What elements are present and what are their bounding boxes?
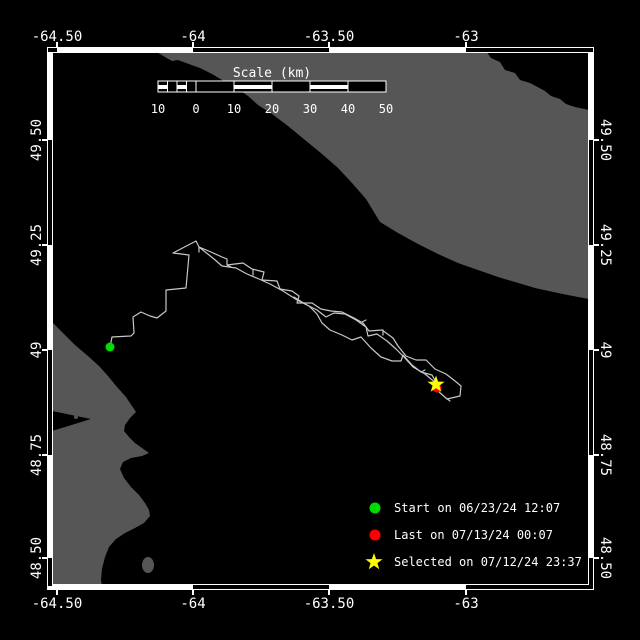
lat-label-right: 48.75 — [597, 434, 613, 476]
lat-label-left: 49.25 — [29, 224, 45, 266]
lon-label-bottom: -63 — [453, 596, 478, 612]
lon-label-bottom: -64.50 — [32, 596, 83, 612]
map-canvas: -64.50 -64 -63.50 -63 -64.50 -64 -63.50 … — [0, 0, 640, 640]
legend-last-label: Last on 07/13/24 00:07 — [394, 528, 553, 542]
scale-bar-label: 50 — [379, 102, 393, 116]
legend: Start on 06/23/24 12:07 Last on 07/13/24… — [365, 501, 581, 569]
lat-label-right: 48.50 — [597, 537, 613, 579]
lon-label-top: -63.50 — [304, 29, 355, 45]
lat-label-left: 49.50 — [29, 119, 45, 161]
lat-label-left: 48.50 — [29, 537, 45, 579]
scale-bar-label: 20 — [265, 102, 279, 116]
lon-label-bottom: -64 — [180, 596, 205, 612]
coastal-islet — [74, 415, 78, 419]
scale-bar-label: 30 — [303, 102, 317, 116]
small-island — [142, 557, 154, 573]
legend-last-icon — [370, 530, 381, 541]
scale-bar-label: 0 — [192, 102, 199, 116]
drifter-track-map: -64.50 -64 -63.50 -63 -64.50 -64 -63.50 … — [0, 0, 640, 640]
lat-label-right: 49 — [597, 342, 613, 359]
start-position-marker — [106, 343, 115, 352]
scale-bar-label: 40 — [341, 102, 355, 116]
legend-selected-label: Selected on 07/12/24 23:37 — [394, 555, 582, 569]
scale-bar-label: 10 — [227, 102, 241, 116]
lat-label-right: 49.25 — [597, 224, 613, 266]
scale-bar-label: 10 — [151, 102, 165, 116]
scale-bar-title: Scale (km) — [233, 66, 311, 81]
lon-label-bottom: -63.50 — [304, 596, 355, 612]
lon-label-top: -64.50 — [32, 29, 83, 45]
lon-label-top: -64 — [180, 29, 205, 45]
lat-label-left: 48.75 — [29, 434, 45, 476]
legend-start-icon — [370, 503, 381, 514]
legend-start-label: Start on 06/23/24 12:07 — [394, 501, 560, 515]
lat-label-right: 49.50 — [597, 119, 613, 161]
lon-label-top: -63 — [453, 29, 478, 45]
lat-label-left: 49 — [29, 342, 45, 359]
